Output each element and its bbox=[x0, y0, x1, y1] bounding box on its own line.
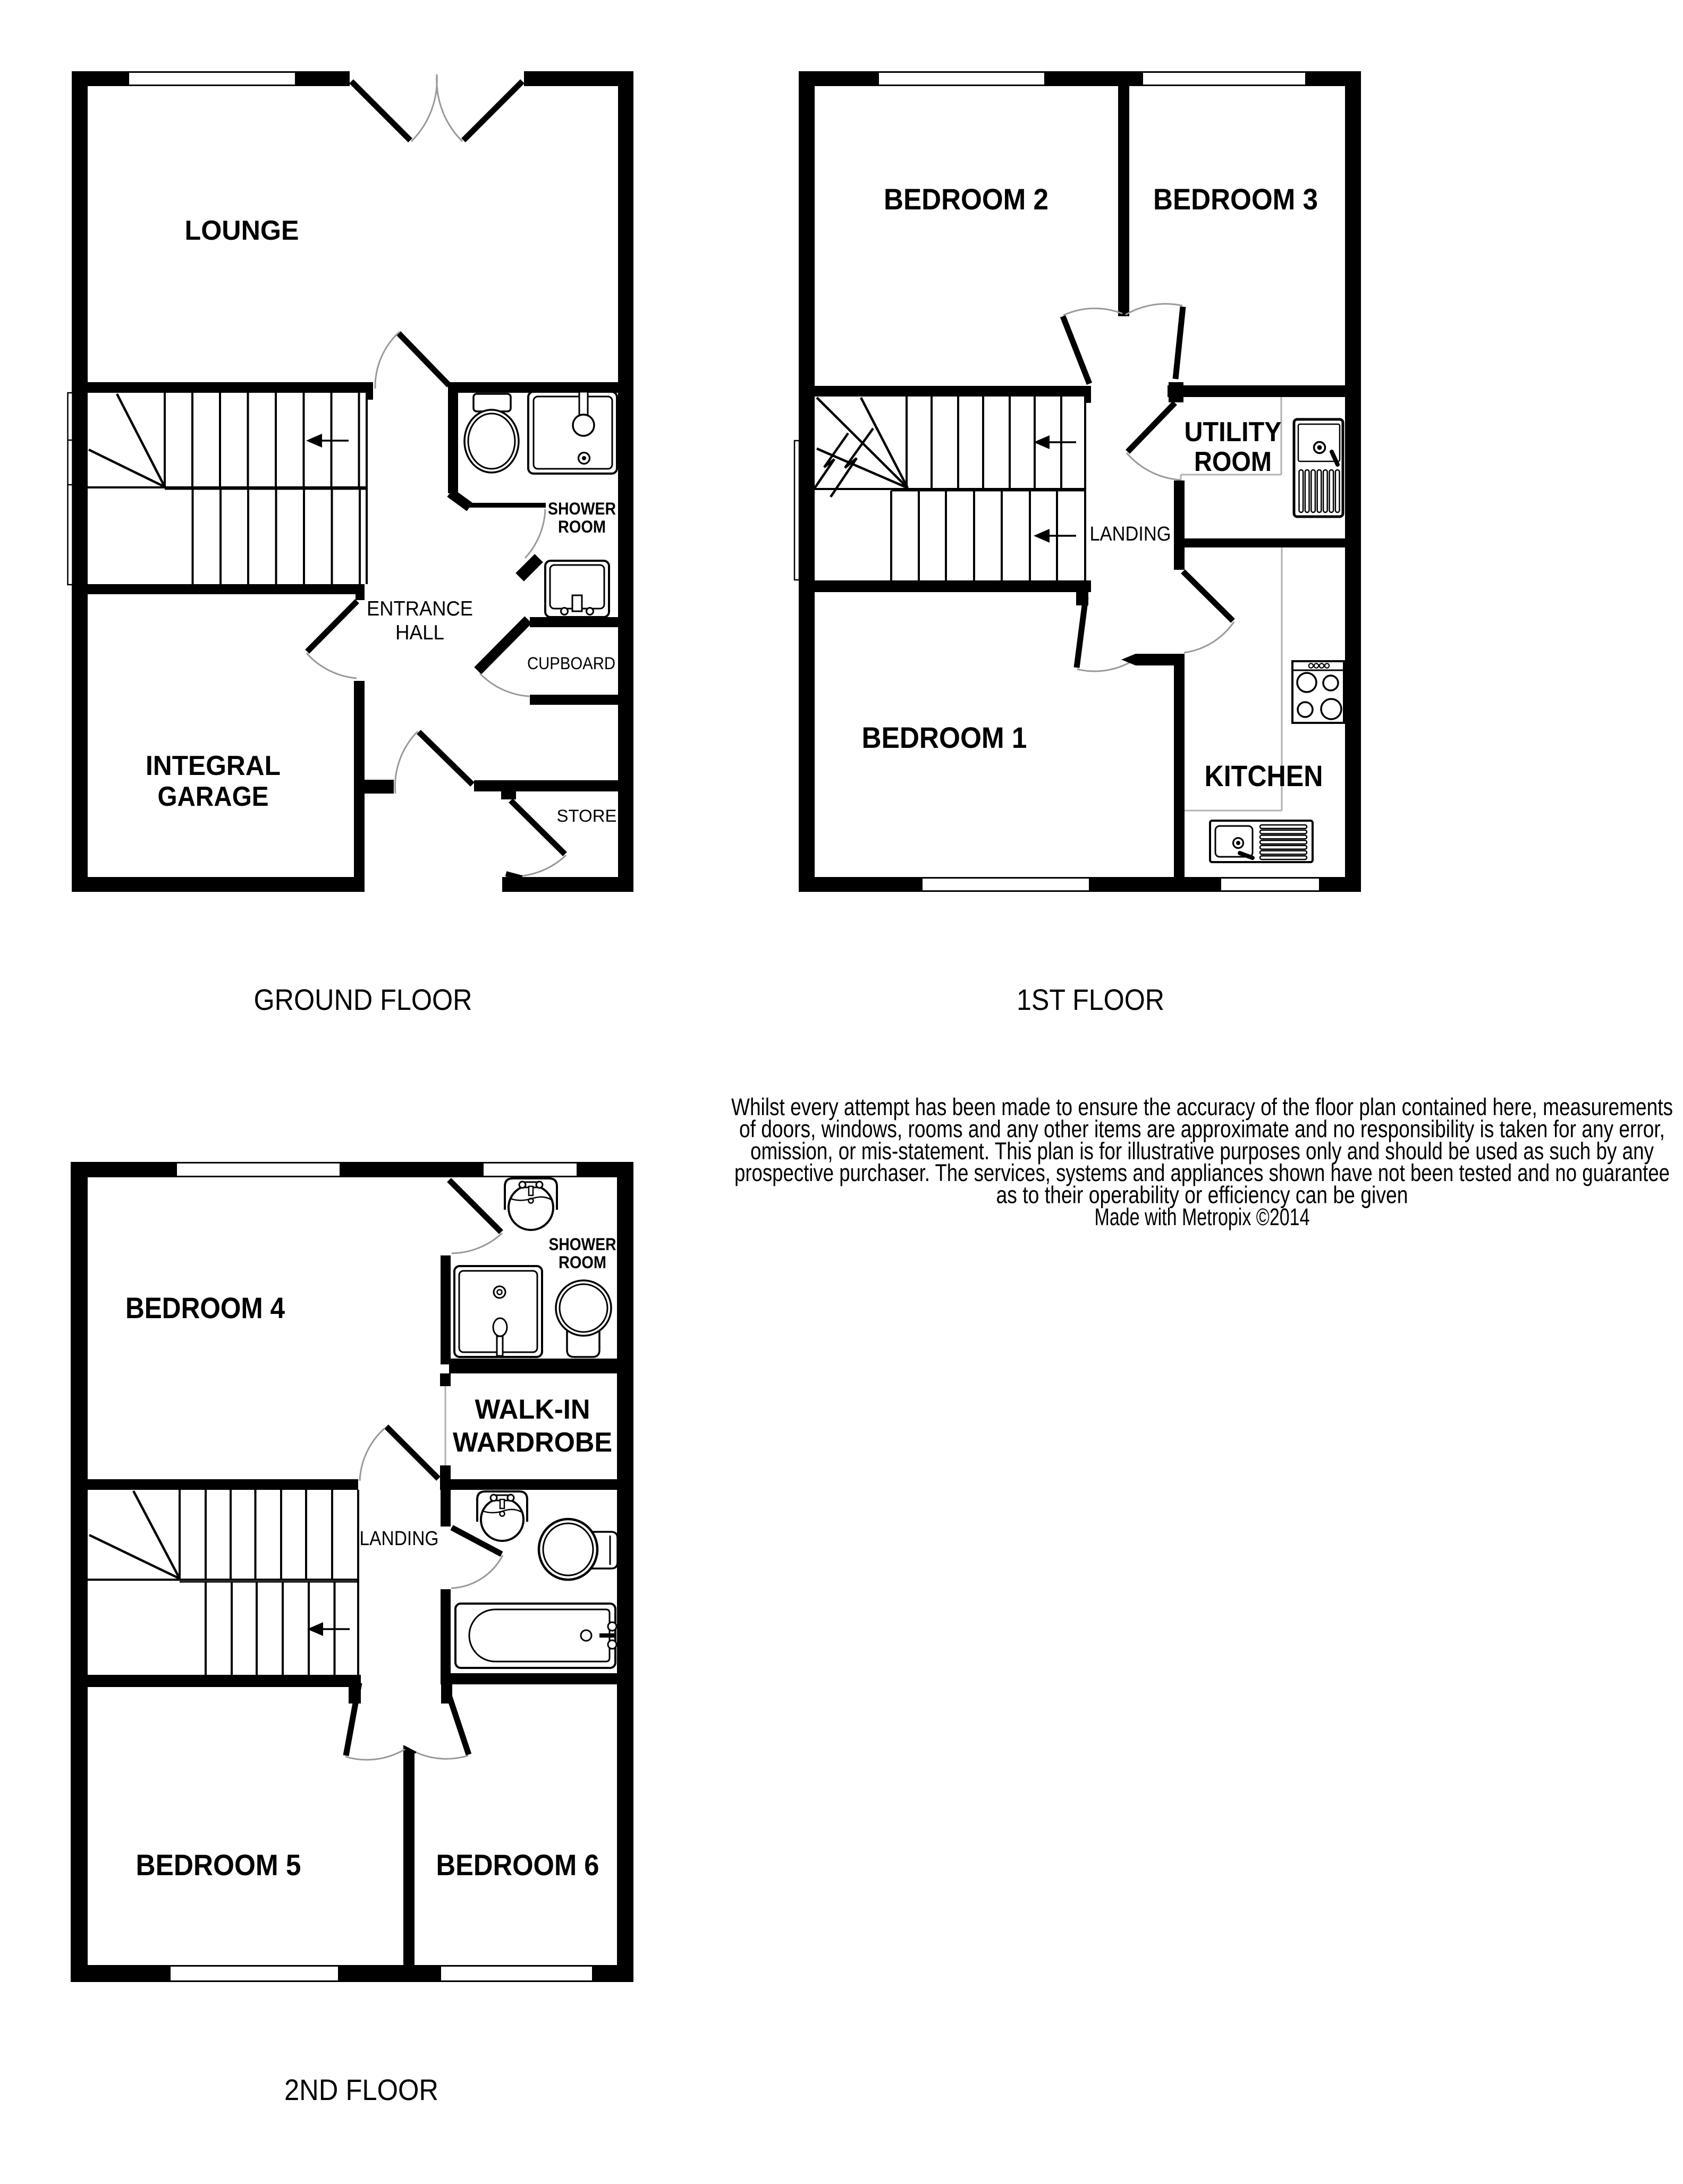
svg-text:ENTRANCE: ENTRANCE bbox=[367, 597, 473, 620]
svg-text:ROOM: ROOM bbox=[559, 1253, 606, 1272]
svg-text:LOUNGE: LOUNGE bbox=[185, 215, 299, 246]
svg-text:BEDROOM 6: BEDROOM 6 bbox=[436, 1848, 599, 1882]
svg-text:1ST FLOOR: 1ST FLOOR bbox=[1017, 983, 1164, 1016]
svg-text:WARDROBE: WARDROBE bbox=[453, 1427, 612, 1458]
svg-text:Made with Metropix ©2014: Made with Metropix ©2014 bbox=[1095, 1203, 1310, 1230]
svg-text:BEDROOM 1: BEDROOM 1 bbox=[862, 721, 1027, 754]
svg-text:BEDROOM 5: BEDROOM 5 bbox=[136, 1848, 301, 1882]
svg-text:ROOM: ROOM bbox=[558, 517, 606, 536]
svg-text:LANDING: LANDING bbox=[1090, 523, 1171, 545]
svg-text:HALL: HALL bbox=[395, 621, 444, 644]
svg-text:STORE: STORE bbox=[557, 806, 617, 825]
svg-text:ROOM: ROOM bbox=[1194, 446, 1272, 477]
svg-text:BEDROOM 3: BEDROOM 3 bbox=[1153, 182, 1318, 216]
svg-text:UTILITY: UTILITY bbox=[1185, 417, 1282, 448]
svg-text:INTEGRAL: INTEGRAL bbox=[146, 751, 281, 781]
svg-text:GROUND FLOOR: GROUND FLOOR bbox=[254, 983, 472, 1016]
svg-text:GARAGE: GARAGE bbox=[158, 781, 269, 812]
svg-text:BEDROOM 2: BEDROOM 2 bbox=[884, 182, 1048, 216]
svg-text:KITCHEN: KITCHEN bbox=[1205, 759, 1323, 792]
svg-text:LANDING: LANDING bbox=[360, 1528, 439, 1550]
svg-text:SHOWER: SHOWER bbox=[549, 1235, 616, 1254]
svg-text:WALK-IN: WALK-IN bbox=[475, 1394, 590, 1425]
svg-text:BEDROOM 4: BEDROOM 4 bbox=[125, 1291, 285, 1325]
svg-text:CUPBOARD: CUPBOARD bbox=[527, 654, 615, 673]
svg-text:SHOWER: SHOWER bbox=[548, 499, 616, 518]
svg-text:2ND FLOOR: 2ND FLOOR bbox=[284, 2073, 438, 2106]
